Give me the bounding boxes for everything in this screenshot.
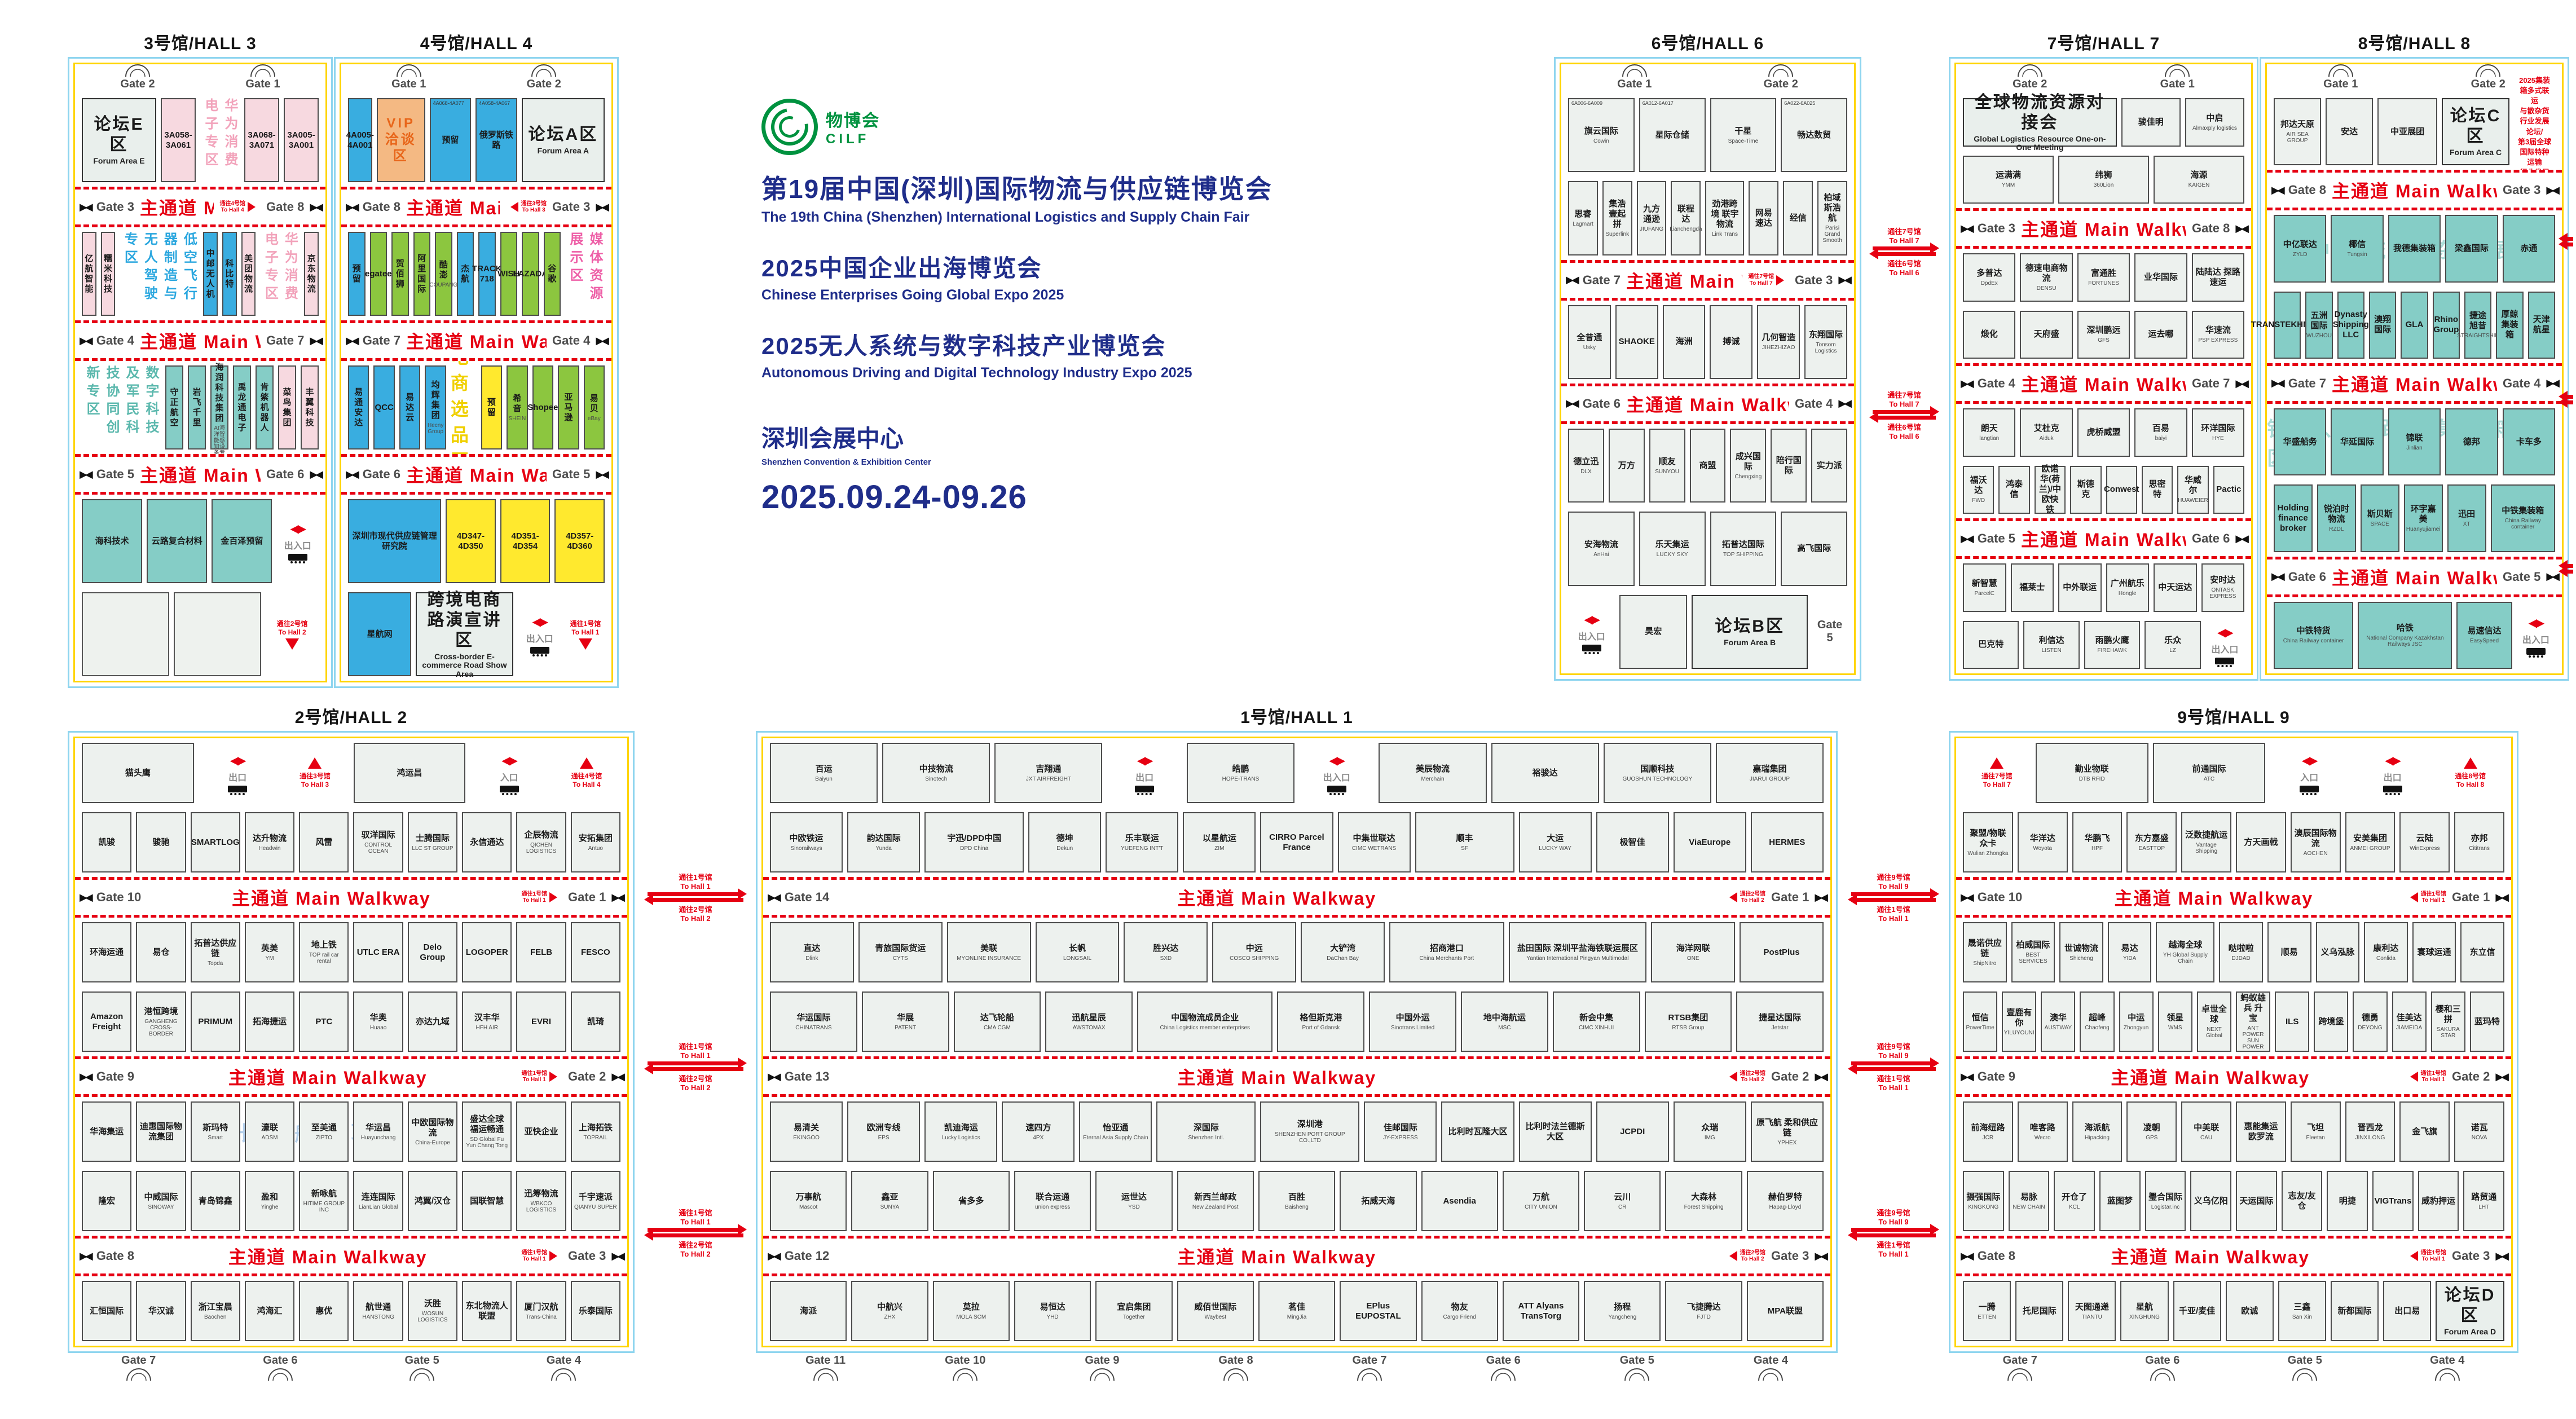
booth-name-cn: 康利达 (2373, 944, 2398, 954)
booth-name-en: Yinghe (261, 1204, 279, 1210)
booth: 卡车多 (2503, 408, 2555, 475)
to-hall-note-label: 通往7号馆To Hall 7 (1981, 771, 2013, 788)
booth-name-cn: 皓鹏 (1232, 764, 1249, 774)
booth: 新智慧ParcelC (1963, 563, 2006, 612)
gate-label: Gate 1 (2323, 78, 2358, 91)
gate-bowtie-icon: ▶◀ (310, 201, 321, 213)
booth: 守正航空 (165, 365, 183, 450)
booth: 哈铁National Company Kazakhstan Railways J… (2358, 602, 2452, 669)
booth: 海派 (770, 1281, 847, 1341)
booth-name-cn: 厦门汉航 (525, 1302, 558, 1312)
gate-label: Gate 4 (1754, 1354, 1788, 1367)
gate-label: Gate 7 (121, 1354, 156, 1367)
booth: 易贝eBay (584, 365, 605, 450)
booth-name-cn: 华运昌 (366, 1123, 391, 1133)
booth: 超峰Chaofeng (2080, 991, 2114, 1052)
direction-arrow-icon (505, 202, 518, 212)
booth-name-en: China-Europe (415, 1140, 450, 1146)
door-arc-icon (551, 1368, 576, 1381)
booth-name-cn: 中外联运 (2063, 583, 2097, 593)
booth: HERMES (1751, 812, 1824, 872)
main-walkway-label: 主通道 Main Walkway (2332, 177, 2497, 203)
booth-name-cn: 海派航 (2084, 1123, 2110, 1133)
booth: 一腾ETTEN (1963, 1281, 2011, 1341)
booth-strip: 易通安达QCC易达云均辉集团Hecny Group电商选品区预留希音SHEINS… (341, 361, 611, 454)
entrance-exit-label: ◀▶出入口 (276, 499, 319, 583)
booth: 中外联运 (2058, 563, 2102, 612)
booth-name-en: Aiduk (2040, 435, 2054, 442)
booth-name-cn: 金百泽预留 (221, 536, 263, 547)
booth: 肯綮机器人 (256, 365, 274, 450)
booth-name-en: COUPANG (429, 282, 457, 288)
booth: 赫伯罗特Hapag-Lloyd (1747, 1171, 1824, 1231)
booth-name-en: eBay (588, 416, 601, 422)
gate-bowtie-icon: ▶◀ (2495, 892, 2507, 904)
connector-label-left: 通往1号馆To Hall 1 (1877, 1073, 1910, 1092)
booth-name-en: MYONLINE INSURANCE (957, 955, 1021, 962)
booth-name-en: LZ (2169, 647, 2176, 654)
booth: 摄强国际KINGKONG (1963, 1171, 2004, 1231)
booth-name-en: SINOWAY (148, 1204, 174, 1210)
booth: 煅化 (1963, 311, 2015, 359)
booth-name-cn: 三鑫 (2293, 1302, 2310, 1312)
booth: 凯琦 (571, 991, 620, 1052)
booth-name-cn: Pactic (2216, 484, 2241, 495)
booth-name-en: Yunda (875, 845, 891, 852)
booth-name-cn: 斯德克 (2073, 479, 2098, 500)
booth: 拓普达供应链Topda (191, 922, 240, 982)
booth: 九方通逊JIUFANG (1637, 181, 1667, 255)
booth-strip: 恒信PowerTime壹鹿有你YILUYOUNI澳华AUSTWAY超峰Chaof… (1956, 987, 2511, 1056)
booth: 聚盟/物联众卡Wulian Zhongka (1963, 812, 2013, 872)
booth: 联程达Lianchengda (1671, 181, 1701, 255)
gate-label: Gate 6 (1486, 1354, 1521, 1367)
booth: 安海物流AnHai (1568, 512, 1635, 585)
booth-name-cn: 晟诺供应链 (1966, 938, 2003, 959)
booth-name-cn: 千亚/麦佳 (2179, 1306, 2215, 1316)
booth-name-cn: 欧诺华(荷兰)/中欧快铁 (2038, 464, 2062, 515)
booth: 斯贝斯SPACE (2361, 484, 2399, 552)
booth: Pactic (2213, 466, 2244, 514)
booth-name-cn: 易脉 (2020, 1192, 2037, 1202)
booth-name-cn: 义乌泓脉 (2320, 948, 2354, 958)
hall-map-hall8: Gate 1Gate 2邦达天原AIR SEA GROUP安达中亚展团论坛C区F… (2260, 57, 2569, 681)
booth-name-en: JINXILONG (2355, 1135, 2385, 1141)
booth: 朗天langtian (1963, 408, 2015, 457)
edge-arrow-icon (2561, 395, 2574, 404)
booth-name-cn: 明捷 (2339, 1196, 2356, 1206)
booth: 安达 (2326, 98, 2373, 165)
event-subtitle1-en: Chinese Enterprises Going Global Expo 20… (761, 287, 1489, 303)
walkway-direction-note: 通往1号馆To Hall 1 (521, 891, 562, 904)
booth: 连连国际LianLian Global (353, 1171, 403, 1231)
booth-name-cn: 欧诚 (2241, 1306, 2258, 1316)
booth-name-en: Mascot (799, 1204, 817, 1210)
booth-name-cn: 4D357-4D360 (558, 531, 601, 552)
booth: 亦达九域 (408, 991, 457, 1052)
booth-name-cn: 联程达 (1674, 204, 1697, 224)
booth-name-cn: 环宇嘉美 (2407, 504, 2440, 525)
booth-name-cn: 勤业物联 (2075, 764, 2109, 774)
booth: 中技物流Sinotech (882, 743, 990, 803)
gate-bowtie-icon: ▶◀ (768, 892, 779, 904)
booth-name-en: Cititrans (2469, 845, 2490, 852)
booth-name-cn: 壹鹿有你 (2005, 1008, 2033, 1028)
booth-strip: 朗天langtian艾杜克Aiduk虎桥威盟百易baiyi环洋国际HYE (1956, 404, 2251, 461)
booth: 晋西龙JINXILONG (2345, 1101, 2396, 1162)
booth-name-en: Headwin (259, 845, 281, 852)
booth-name-cn: 禹龙通电子 (236, 382, 248, 433)
booth-code: 4A058-4A067 (479, 100, 510, 106)
booth: 路贸通LHT (2463, 1171, 2504, 1231)
vertical-zone-label: 华为消费电子专区 (200, 98, 240, 182)
booth: 海洋网联ONE (1651, 922, 1735, 982)
walkway-right-gate: Gate 3 (1771, 1249, 1809, 1263)
booth-name-cn: 赫伯罗特 (1768, 1192, 1802, 1202)
gate-gate-11: Gate 11 (805, 1354, 846, 1381)
booth-name-cn: HERMES (1769, 838, 1805, 848)
booth: 均辉集团Hecny Group (425, 365, 446, 450)
booth: 中国物流成员企业China Logistics member enterpris… (1137, 991, 1272, 1052)
booth-name-en: ONE (1687, 955, 1699, 962)
zone-watermark-label: 电商选品区 (451, 365, 477, 450)
booth-name-cn: 佳邮国际 (1384, 1123, 1417, 1133)
booth-name-cn: 世诚物流 (2064, 944, 2098, 954)
booth-name-cn: 地中海航运 (1483, 1013, 1526, 1023)
booth-name-cn: 劲港跨境 联宇物流 (1708, 199, 1741, 230)
truck-icon (1582, 645, 1601, 651)
booth: 海科技术 (82, 499, 142, 583)
booth-name-cn: 澳辰国际物流 (2294, 829, 2337, 849)
booth: 易清关EKINGOO (770, 1101, 843, 1162)
gate-bowtie-icon: ▶◀ (310, 335, 321, 347)
entrance-exit-label: ◀▶出口 (1107, 743, 1182, 803)
gate-bowtie-icon: ▶◀ (1815, 1250, 1826, 1262)
booth-name-en: Huanyujiamei (2406, 526, 2441, 532)
booth-name-cn: 新会中集 (1579, 1013, 1613, 1023)
booth: 中亚展团 (2377, 98, 2437, 165)
booth-name-en: Lianchengda (1670, 226, 1702, 232)
booth-name-en: YPHEX (1777, 1140, 1796, 1146)
booth-name-cn: 飞坦 (2307, 1123, 2324, 1133)
booth: 网易速达 (1749, 181, 1778, 255)
booth-strip: 6A006-6A009旗云国际Cowin6A012-6A017星际仓储干星Spa… (1561, 94, 1854, 177)
walkway-direction-note: 通往1号馆To Hall 1 (521, 1250, 562, 1263)
truck-icon (288, 554, 307, 561)
walkway-left-gate: Gate 3 (96, 200, 134, 214)
booth: FESCO (571, 922, 620, 982)
booth-name-en: SPACE (2371, 521, 2389, 527)
booth-name-en: COSCO SHIPPING (1230, 955, 1279, 962)
gate-bowtie-icon: ▶◀ (1961, 892, 1972, 904)
booth-name-en: Yantian International Pingyan Multimodal (1526, 955, 1628, 962)
booth-name-cn: SMARTLOG (191, 838, 240, 848)
booth-name-cn: 几何智造 (1762, 333, 1795, 343)
booth: 威佰世国际Waybest (1177, 1281, 1254, 1341)
booth: 宜启集团Together (1095, 1281, 1172, 1341)
booth-name-cn: 深圳市现代供应链管理研究院 (351, 531, 438, 552)
booth: 飞捷腾达FJTD (1665, 1281, 1742, 1341)
booth-name-en: ANT POWER SUN POWER (2239, 1025, 2267, 1050)
main-walkway-label: 主通道 Main Walkway (2021, 526, 2186, 552)
access-label: 出口 (1135, 770, 1153, 783)
booth: 4D351-4D354 (500, 499, 551, 583)
booth-name-cn: 青岛锦鑫 (199, 1196, 232, 1206)
connector-arrow-right-icon (648, 892, 743, 896)
booth-name-en: Sinotrans Limited (1391, 1025, 1434, 1031)
booth: 以星航运ZIM (1183, 812, 1256, 872)
to-hall-note-label: 通往1号馆To Hall 1 (570, 619, 601, 636)
booth-name-cn: 凯迪海运 (944, 1123, 978, 1133)
gate-bowtie-icon: ▶◀ (1961, 378, 1972, 390)
booth: 英美YM (245, 922, 294, 982)
booth-name-cn: 邦达天原 (2280, 120, 2314, 130)
booth-name-cn: 4D347-4D350 (449, 531, 492, 552)
booth: 中航兴ZHX (851, 1281, 928, 1341)
gate-bowtie-icon: ▶◀ (2235, 533, 2247, 545)
walkway-left-gate: Gate 6 (363, 467, 400, 482)
booth: 酷澎COUPANG (435, 232, 452, 316)
booth: 中美联CAU (2181, 1101, 2231, 1162)
direction-note-label: 通往7号馆To Hall 7 (1748, 274, 1774, 287)
booth-name-cn: 乐泰国际 (579, 1306, 613, 1316)
booth-name-cn: 航世通 (366, 1302, 391, 1312)
booth-name-en: ADSM (262, 1135, 278, 1141)
booth: 菜鸟集团 (278, 365, 296, 450)
booth-name-cn: 千宇速派 (579, 1192, 613, 1202)
gate-door-icon (2007, 1368, 2032, 1381)
booth-name-cn: 宜启集团 (1117, 1302, 1151, 1312)
booth-name-cn: 跨境堡 (2318, 1017, 2344, 1027)
booth-name-en: Sinotech (925, 776, 947, 782)
booth-name-en: Conlida (2376, 955, 2396, 962)
booth-name-en: YUEFENG INT'T (1121, 845, 1163, 852)
top-gates-row: Gate 1Gate 2 (2267, 64, 2562, 94)
booth-name-en: MingJia (1287, 1314, 1306, 1320)
booth-name-en: Forum Area B (1724, 638, 1776, 647)
booth: 椰信Tungsin (2331, 215, 2383, 282)
booth: 业华国际 (2134, 253, 2187, 302)
booth: 3A058-3A061 (161, 98, 196, 182)
booth-name-en: Wulian Zhongka (1967, 850, 2008, 857)
connector-label-left: 通往2号馆To Hall 2 (679, 904, 712, 923)
booth-name-cn: 海派 (800, 1306, 817, 1316)
booth: 佳邮国际JY-EXPRESS (1364, 1101, 1437, 1162)
booth: 惠优 (299, 1281, 349, 1341)
booth-name-cn: 盐田国际 深圳平盐海铁联运展区 (1517, 944, 1638, 954)
booth-name-cn: 沃胜 (424, 1299, 441, 1309)
booth: 万事航Mascot (770, 1171, 847, 1231)
hall-panel-hall2: 2号馆/HALL 2猫头鹰◀▶出口通往3号馆To Hall 3鸿运昌◀▶入口通往… (68, 705, 635, 1402)
main-walkway-label: 主通道 Main Walkway (2028, 884, 2399, 910)
booth-name-cn: 易速信达 (2468, 626, 2502, 636)
booth: Delo Group (408, 922, 457, 982)
booth-name-cn: Asendia (1443, 1196, 1476, 1206)
booth: 鸿泰信 (1998, 466, 2029, 514)
booth-name-cn: 利信达 (2039, 636, 2064, 646)
main-walkway-label: 主通道 Main Walkway (2332, 564, 2497, 590)
main-walkway: ▶◀Gate 5主通道 Main WalkwayGate 6▶◀ (75, 454, 325, 495)
booth-name-cn: 易达云 (403, 393, 417, 423)
booth: 汇恒国际 (82, 1281, 131, 1341)
connector-label-right: 通往7号馆To Hall 7 (1887, 226, 1921, 245)
booth-name-cn: 比利时法兰德斯大区 (1522, 1122, 1588, 1142)
access-label: 出入口 (2522, 632, 2549, 646)
booth-name-en: JIAMEIDA (2396, 1025, 2422, 1031)
booth-name-cn: 德立迅 (1573, 457, 1599, 467)
entrance-exit-label: ◀▶出入口 (2205, 621, 2244, 669)
booth-name-en: Tungsin (2348, 252, 2367, 258)
booth: 天运国际 (2236, 1171, 2277, 1231)
booth-strip: 铁路、公路、集装箱展区华盛船务华延国际锦联Jinlian德邦卡车多 (2267, 404, 2562, 480)
walkway-left-gate: Gate 5 (96, 467, 134, 482)
booth: 中集世联达CIMC WETRANS (1338, 812, 1411, 872)
booth: 天津航星 (2528, 292, 2555, 359)
booth-name-cn: 东立信 (2470, 948, 2495, 958)
direction-arrow-icon (2405, 1072, 2418, 1082)
walkway-right-gate: Gate 2 (2452, 1069, 2490, 1084)
booth-name-cn: 国顺科技 (1640, 764, 1674, 774)
booth: 迅航星辰AWSTOMAX (1045, 991, 1133, 1052)
booth-name-cn: 百运 (816, 764, 833, 774)
direction-arrow-icon (1776, 275, 1789, 285)
gate-door-icon (2476, 64, 2500, 77)
booth-name-cn: 易恒达 (1040, 1302, 1065, 1312)
booth-name-en: Lucky Logistics (942, 1135, 980, 1141)
to-hall-note-label: 通往8号馆To Hall 8 (2455, 771, 2486, 788)
gate-bowtie-icon: ▶◀ (310, 469, 321, 481)
walkway-right-gate: Gate 5 (552, 467, 590, 482)
booth-name-en: SAKURA STAR (2434, 1026, 2462, 1039)
direction-note-label: 通往1号馆To Hall 1 (521, 1070, 547, 1083)
booth: 实力派 (1811, 429, 1847, 503)
booth-name-cn: 搏诚 (1723, 337, 1740, 347)
door-arc-icon (2476, 64, 2500, 77)
gate-bowtie-icon: ▶◀ (2235, 223, 2247, 235)
booth-name-cn: 永信通达 (470, 838, 504, 848)
booth: 顺友SUNYOU (1649, 429, 1685, 503)
booth-name-cn: 思睿 (1574, 209, 1591, 219)
venue-cn: 深圳会展中心 (761, 420, 1489, 454)
walkway-left-gate: Gate 14 (785, 890, 830, 905)
booth-name-cn: PostPlus (1763, 948, 1799, 958)
booth: Asendia (1421, 1171, 1498, 1231)
booth: 千亚/麦佳 (2173, 1281, 2221, 1341)
booth: 我德集装箱 (2388, 215, 2441, 282)
connector-arrow-left-icon (648, 1067, 743, 1071)
booth: 6A022-6A025畅达数贸 (1781, 98, 1847, 172)
door-arc-icon (1768, 64, 1793, 77)
booth-name-cn: RTSB集团 (1668, 1013, 1708, 1023)
forum-area-zone: 论坛A区Forum Area A (522, 98, 605, 182)
booth: 运世达YSD (1095, 1171, 1172, 1231)
main-walkway: ▶◀Gate 7主通道 Main WalkwayGate 4▶◀ (2267, 363, 2562, 404)
booth: SHAOKE (1615, 305, 1658, 379)
booth-strip: 深圳市现代供应链管理研究院4D347-4D3504D351-4D3544D357… (341, 495, 611, 588)
booth: 6A006-6A009旗云国际Cowin (1568, 98, 1635, 172)
walkway-left-gate: Gate 13 (785, 1069, 830, 1084)
booth: 劲港跨境 联宇物流Link Trans (1705, 181, 1744, 255)
walkway-direction-note: 通往7号馆To Hall 7 (1748, 274, 1789, 287)
booth: 拓威天海 (1340, 1171, 1416, 1231)
gate-gate-7: Gate 7 (1353, 1354, 1387, 1381)
booth-name-en: China Railway container (2283, 638, 2344, 644)
gate-door-icon (126, 1368, 151, 1381)
booth-strip: 一腾ETTEN托尼国际天图通递TIANTU星航XINGHUNG千亚/麦佳欧诚三鑫… (1956, 1276, 2511, 1346)
booth-strip: 思睿Lagmart集浩壹起拼Superlink九方通逊JIUFANG联程达Lia… (1561, 177, 1854, 259)
booth-name-en: Baochen (204, 1314, 226, 1320)
gate-bowtie-icon: ▶◀ (2235, 378, 2247, 390)
booth: 士腾国际LLC ST GROUP (408, 812, 457, 872)
access-label: 出入口 (1578, 629, 1605, 642)
gate-door-icon (813, 1368, 838, 1381)
booth-name-cn: 天府盛 (2034, 329, 2059, 340)
booth: 速四方4PX (1002, 1101, 1075, 1162)
booth-name-en: Link Trans (1712, 231, 1738, 237)
booth: 运满满YMM (1963, 156, 2054, 204)
booth-name-cn: 乐众 (2164, 636, 2181, 646)
booth-strip: 环海运通易仓拓普达供应链Topda英美YM地上铁TOP rail car ren… (75, 918, 627, 987)
main-walkway: ▶◀Gate 14主通道 Main Walkway通往2号馆To Hall 2G… (763, 877, 1830, 918)
booth-name-en: AnHai (1593, 552, 1609, 558)
booth: 杰航 (457, 232, 474, 316)
booth-name-cn: egatee (365, 269, 392, 279)
booth-name-en: CMA CGM (984, 1025, 1011, 1031)
booth: 中亿联达ZYLD (2274, 215, 2326, 282)
booth-name-cn: 中技物流 (919, 764, 953, 774)
booth-name-en: GFS (2098, 337, 2110, 343)
booth: 前通国际ATC (2153, 743, 2266, 803)
booth-name-cn: 连连国际 (362, 1192, 395, 1202)
booth-name-cn: 思密特 (2145, 479, 2169, 500)
booth: 云陆WinExpress (2399, 812, 2450, 872)
booth-name-cn: 澳华 (2050, 1013, 2067, 1023)
gate-bowtie-icon: ▶◀ (80, 201, 91, 213)
booth: 地中海航运MSC (1461, 991, 1548, 1052)
booth: 青旅国际货运CYTS (858, 922, 943, 982)
booth: 海派航Hipacking (2072, 1101, 2123, 1162)
gate-label: Gate 4 (547, 1354, 581, 1367)
booth-name-en: EPS (878, 1135, 890, 1141)
booth-name-en: New Zealand Post (1192, 1204, 1239, 1210)
gate-bowtie-icon: ▶◀ (80, 469, 91, 481)
booth: 环宇嘉美Huanyujiamei (2404, 484, 2443, 552)
bottom-gates-row: Gate 7Gate 6Gate 5Gate 4 (68, 1354, 635, 1381)
gate-bowtie-icon: ▶◀ (2271, 377, 2283, 389)
main-walkway-label: 主通道 Main Walkway (835, 884, 1719, 910)
main-walkway: ▶◀Gate 8主通道 Main Walkway通往1号馆To Hall 1Ga… (75, 1236, 627, 1276)
walkway-right-gate: Gate 3 (2452, 1249, 2490, 1263)
gate-label: Gate 5 (405, 1354, 439, 1367)
booth: 捷星达国际Jetstar (1736, 991, 1824, 1052)
booth-name-cn: 华延国际 (2340, 437, 2374, 447)
main-walkway-label: 主通道 Main Walkway (140, 1064, 516, 1090)
connector-arrow-left-icon (1851, 898, 1936, 902)
booth-name-cn: 惠优 (315, 1306, 332, 1316)
booth: 比利时瓦隆大区 (1441, 1101, 1514, 1162)
connector-label-left: 通往2号馆To Hall 2 (679, 1239, 712, 1258)
booth-name-en: FORTUNES (2088, 280, 2119, 287)
top-gates-row: Gate 2Gate 1 (1956, 64, 2251, 94)
booth-name-cn: 运满满 (1996, 170, 2021, 180)
booth-name-cn: 华汉诚 (148, 1306, 174, 1316)
booth: PRIMUM (191, 991, 240, 1052)
booth-name-cn: 云陆 (2416, 834, 2433, 844)
booth: 乐泰国际 (571, 1281, 620, 1341)
booth-name-en: EASTTOP (2139, 845, 2165, 852)
walkway-left-gate: Gate 6 (2288, 570, 2326, 584)
booth-name-cn: 捷星达国际 (1759, 1013, 1801, 1023)
